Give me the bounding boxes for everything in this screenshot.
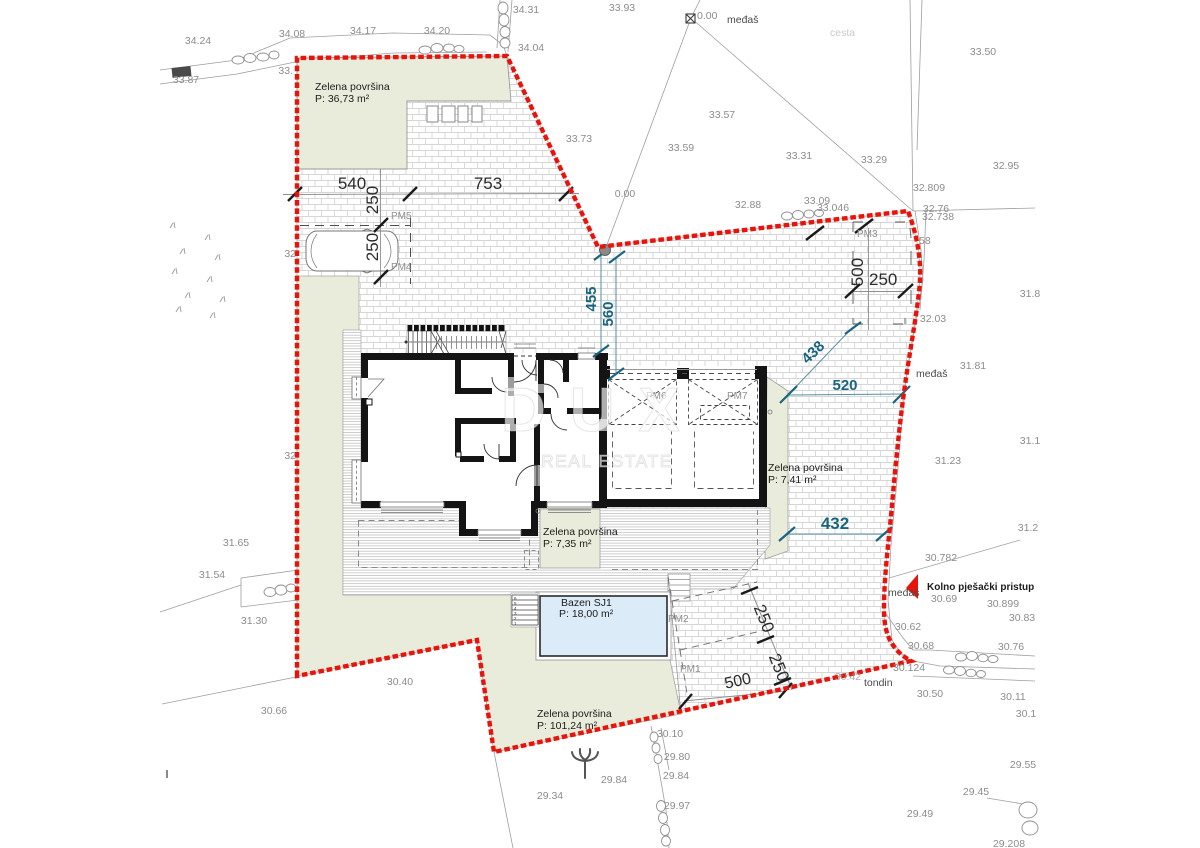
svg-text:30.66: 30.66 bbox=[261, 705, 287, 717]
svg-text:29.84: 29.84 bbox=[601, 774, 627, 786]
svg-text:Zelena površina: Zelena površina bbox=[543, 526, 618, 538]
svg-text:29.80: 29.80 bbox=[664, 751, 690, 763]
svg-text:34.31: 34.31 bbox=[513, 4, 539, 16]
svg-text:33.31: 33.31 bbox=[786, 150, 812, 162]
svg-text:30.10: 30.10 bbox=[657, 728, 683, 740]
svg-text:međaš: međaš bbox=[727, 14, 759, 26]
svg-text:31.1: 31.1 bbox=[1020, 435, 1041, 447]
svg-text:32: 32 bbox=[284, 450, 296, 462]
svg-text:250: 250 bbox=[363, 186, 382, 214]
svg-text:30.124: 30.124 bbox=[893, 662, 925, 674]
svg-text:P: 7,41 m²: P: 7,41 m² bbox=[768, 474, 817, 486]
svg-text:33.87: 33.87 bbox=[173, 74, 199, 86]
svg-text:P: 36,73 m²: P: 36,73 m² bbox=[315, 93, 370, 105]
svg-text:PM3: PM3 bbox=[857, 229, 878, 240]
svg-text:29.84: 29.84 bbox=[663, 770, 689, 782]
svg-text:30.782: 30.782 bbox=[925, 552, 957, 564]
svg-text:432: 432 bbox=[821, 514, 849, 533]
svg-text:33.73: 33.73 bbox=[566, 133, 592, 145]
svg-text:30.42: 30.42 bbox=[835, 671, 861, 683]
svg-text:32.88: 32.88 bbox=[735, 199, 761, 211]
svg-text:34.20: 34.20 bbox=[424, 25, 450, 37]
svg-text:29.55: 29.55 bbox=[1010, 759, 1036, 771]
svg-text:tondin: tondin bbox=[864, 677, 893, 689]
svg-text:540: 540 bbox=[338, 174, 366, 193]
svg-text:0.00: 0.00 bbox=[615, 188, 636, 200]
svg-text:31.23: 31.23 bbox=[935, 455, 961, 467]
svg-text:međaš: međaš bbox=[916, 368, 948, 380]
svg-text:P: 7,35 m²: P: 7,35 m² bbox=[543, 538, 592, 550]
svg-text:32.95: 32.95 bbox=[993, 160, 1019, 172]
svg-text:32: 32 bbox=[284, 248, 296, 260]
svg-text:30.62: 30.62 bbox=[895, 621, 921, 633]
svg-text:Zelena površina: Zelena površina bbox=[537, 708, 612, 720]
svg-text:455: 455 bbox=[583, 286, 600, 311]
svg-text:30.11: 30.11 bbox=[1000, 691, 1026, 703]
svg-text:34.04: 34.04 bbox=[518, 42, 544, 54]
svg-text:Zelena površina: Zelena površina bbox=[768, 462, 843, 474]
svg-text:31.2: 31.2 bbox=[1018, 522, 1039, 534]
svg-text:0.00: 0.00 bbox=[697, 10, 718, 22]
svg-text:30.899: 30.899 bbox=[987, 598, 1019, 610]
svg-text:30.40: 30.40 bbox=[387, 676, 413, 688]
svg-text:250: 250 bbox=[363, 233, 382, 261]
svg-text:Kolno pješački pristup: Kolno pješački pristup bbox=[927, 582, 1034, 593]
svg-text:31.54: 31.54 bbox=[199, 569, 225, 581]
svg-text:29.45: 29.45 bbox=[963, 786, 989, 798]
svg-text:30.83: 30.83 bbox=[1009, 612, 1035, 624]
svg-text:30.76: 30.76 bbox=[998, 641, 1024, 653]
svg-text:753: 753 bbox=[474, 174, 502, 193]
svg-text:58: 58 bbox=[919, 235, 931, 247]
svg-text:560: 560 bbox=[600, 301, 617, 326]
svg-text:520: 520 bbox=[832, 377, 857, 394]
svg-text:29.97: 29.97 bbox=[664, 800, 690, 812]
svg-text:PM1: PM1 bbox=[680, 664, 701, 675]
svg-text:Zelena površina: Zelena površina bbox=[315, 81, 390, 93]
svg-text:30.68: 30.68 bbox=[908, 640, 934, 652]
svg-text:31.81: 31.81 bbox=[960, 360, 986, 372]
svg-text:32.03: 32.03 bbox=[920, 313, 946, 325]
svg-text:29.208: 29.208 bbox=[993, 838, 1025, 848]
svg-text:cesta: cesta bbox=[830, 27, 855, 39]
svg-text:PM7: PM7 bbox=[727, 391, 748, 402]
svg-text:500: 500 bbox=[848, 258, 867, 286]
svg-text:31.8: 31.8 bbox=[1020, 288, 1041, 300]
svg-text:33.29: 33.29 bbox=[861, 154, 887, 166]
svg-text:31.65: 31.65 bbox=[223, 537, 249, 549]
svg-text:PM4: PM4 bbox=[391, 262, 412, 273]
svg-text:33.: 33. bbox=[278, 65, 293, 77]
svg-text:29.49: 29.49 bbox=[907, 808, 933, 820]
svg-text:P: 18,00 m²: P: 18,00 m² bbox=[559, 608, 614, 620]
svg-text:33.046: 33.046 bbox=[817, 202, 849, 214]
svg-text:34.08: 34.08 bbox=[279, 28, 305, 40]
svg-text:29.34: 29.34 bbox=[537, 790, 563, 802]
svg-text:PM5: PM5 bbox=[391, 211, 412, 222]
svg-text:250: 250 bbox=[869, 270, 897, 289]
svg-text:34.17: 34.17 bbox=[350, 25, 376, 37]
svg-text:33.50: 33.50 bbox=[970, 46, 996, 58]
svg-text:30.69: 30.69 bbox=[931, 593, 957, 605]
svg-text:REAL ESTATE: REAL ESTATE bbox=[541, 451, 673, 471]
svg-text:PM2: PM2 bbox=[668, 614, 689, 625]
svg-text:30.50: 30.50 bbox=[917, 688, 943, 700]
svg-text:32.738: 32.738 bbox=[922, 211, 954, 223]
svg-text:međaš: međaš bbox=[888, 587, 920, 599]
svg-text:DUX: DUX bbox=[501, 376, 704, 445]
svg-text:34.24: 34.24 bbox=[185, 35, 211, 47]
svg-text:33.57: 33.57 bbox=[709, 109, 735, 121]
svg-text:P: 101,24 m²: P: 101,24 m² bbox=[537, 720, 598, 732]
svg-text:30.1: 30.1 bbox=[1016, 708, 1037, 720]
svg-text:33.59: 33.59 bbox=[668, 142, 694, 154]
svg-text:33.93: 33.93 bbox=[609, 2, 635, 14]
svg-text:32.809: 32.809 bbox=[913, 182, 945, 194]
svg-text:31.30: 31.30 bbox=[241, 615, 267, 627]
